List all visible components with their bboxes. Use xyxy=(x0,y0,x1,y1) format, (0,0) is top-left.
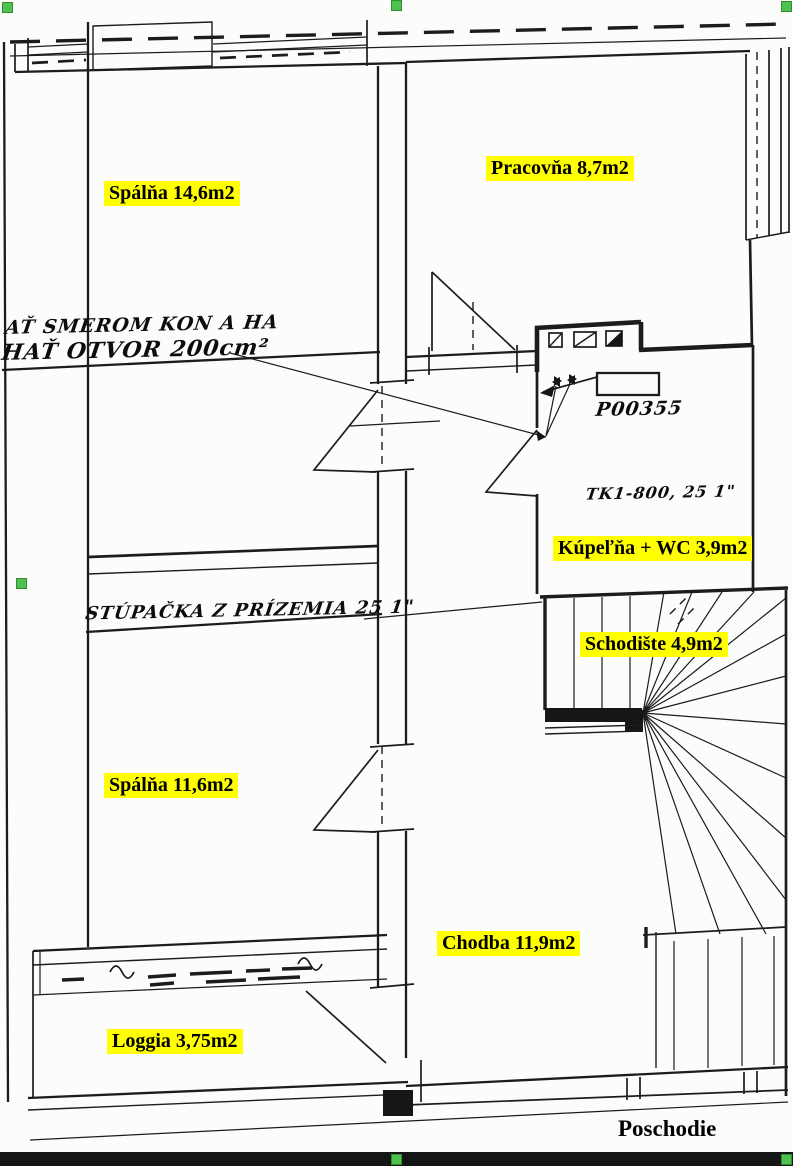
vent-arrow xyxy=(540,374,597,436)
door-leaf-spalna-116 xyxy=(314,750,378,832)
room-label-pracovna: Pracovňa 8,7m2 xyxy=(486,156,634,181)
roof-overhang-dashed-line xyxy=(10,24,786,42)
door-leaf-spalna-146 xyxy=(314,390,378,472)
bedroom-divider-wall xyxy=(88,546,378,557)
loggia-walls xyxy=(28,935,414,1110)
handwritten-note-code: P00355 xyxy=(594,397,684,421)
window-bay xyxy=(93,22,212,70)
selection-handle-bottom-right[interactable] xyxy=(781,1154,792,1165)
selection-handle-top-left[interactable] xyxy=(2,2,13,13)
staircase xyxy=(540,588,788,1096)
boiler-rect xyxy=(597,373,659,395)
floorplan-page: Spálňa 14,6m2 Pracovňa 8,7m2 Kúpeľňa + W… xyxy=(0,0,793,1166)
top-wall-pracovna xyxy=(406,51,750,62)
plan-title: Poschodie xyxy=(618,1116,716,1142)
room-label-spalna-116: Spálňa 11,6m2 xyxy=(104,773,238,798)
left-exterior-wall xyxy=(4,42,8,1102)
corridor-wall xyxy=(350,63,440,1058)
floorplan-drawing xyxy=(0,0,793,1166)
selection-handle-bottom-middle[interactable] xyxy=(391,1154,402,1165)
handwritten-note-tk: TK1-800, 25 1" xyxy=(584,481,737,503)
room-label-chodba: Chodba 11,9m2 xyxy=(437,931,580,956)
selection-handle-left-middle[interactable] xyxy=(16,578,27,589)
selection-handle-top-right[interactable] xyxy=(781,1,792,12)
vent-symbols xyxy=(549,331,622,347)
handwritten-note-vent: AŤ SMEROM KON A HA HAŤ OTVOR 200cm² xyxy=(0,311,280,366)
right-window xyxy=(746,47,789,240)
room-label-loggia: Loggia 3,75m2 xyxy=(107,1029,243,1054)
top-wall-left xyxy=(15,63,406,72)
room-label-schodiste: Schodište 4,9m2 xyxy=(580,632,728,657)
door-leaf-bathroom xyxy=(486,430,537,496)
room-label-kupelna-wc: Kúpeľňa + WC 3,9m2 xyxy=(553,536,752,561)
selection-handle-top-middle[interactable] xyxy=(391,0,402,11)
pracovna-door xyxy=(406,272,537,375)
room-label-spalna-146: Spálňa 14,6m2 xyxy=(104,181,240,206)
